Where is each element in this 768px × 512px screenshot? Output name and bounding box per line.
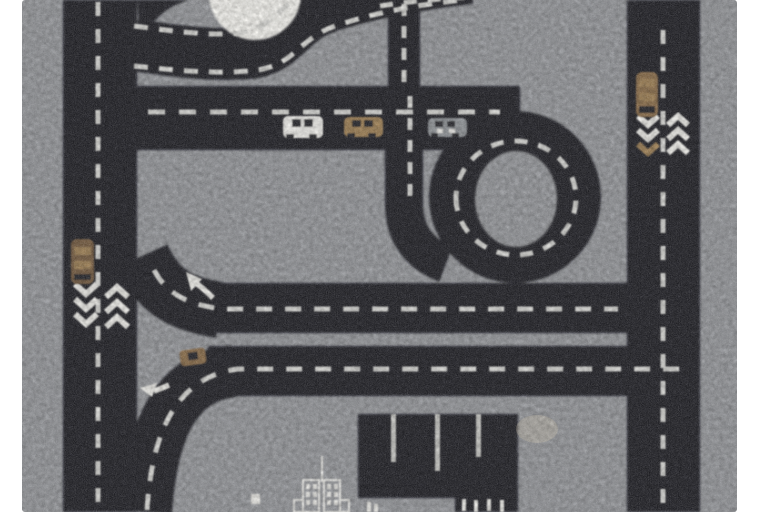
rug-product-photo <box>0 0 768 512</box>
rug-scene <box>0 0 768 512</box>
carpet-texture-blotch <box>22 0 737 512</box>
